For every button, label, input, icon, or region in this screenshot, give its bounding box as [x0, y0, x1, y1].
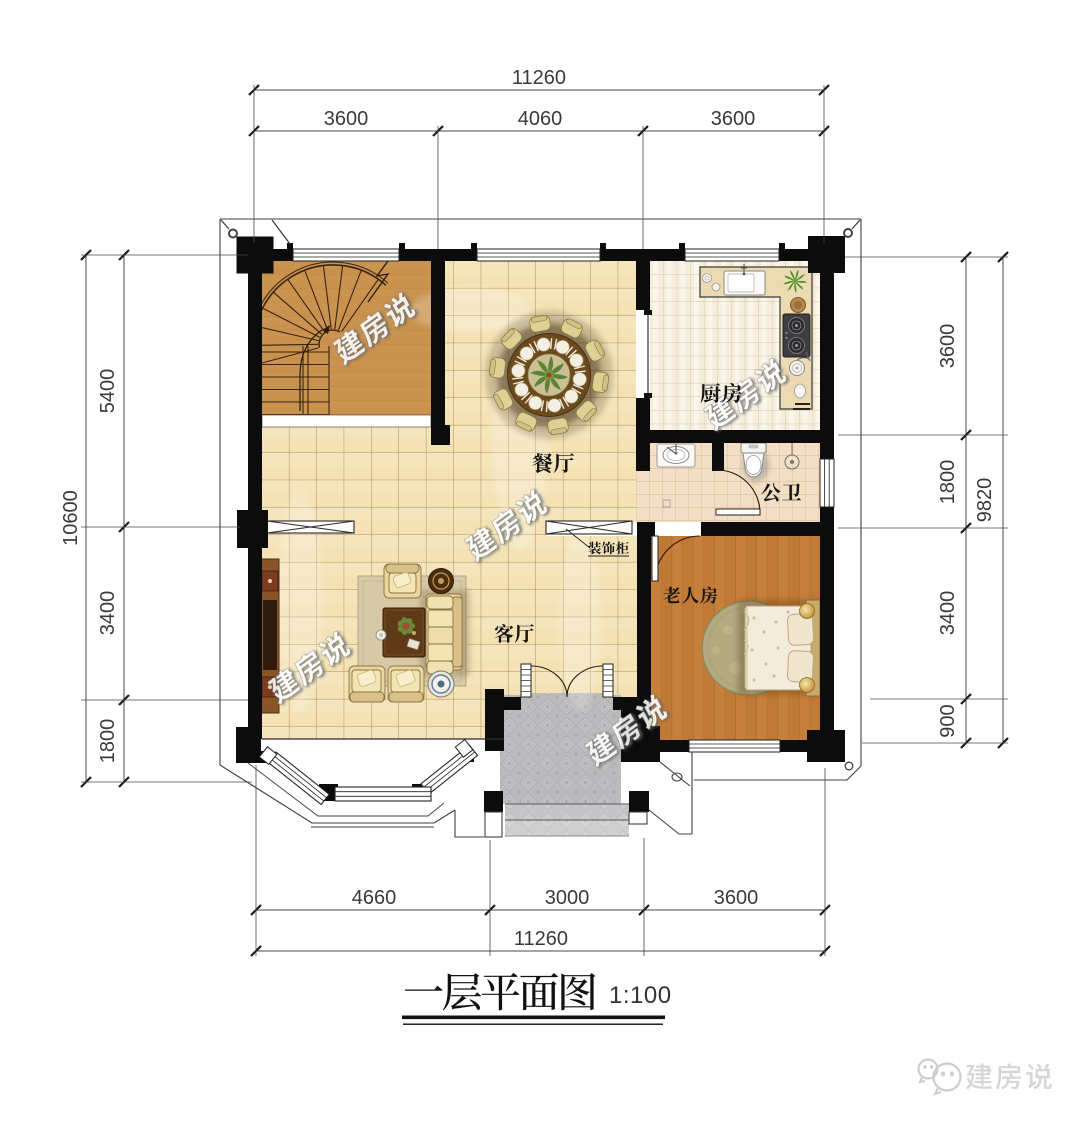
- svg-text:1800: 1800: [97, 719, 119, 764]
- svg-text:3600: 3600: [324, 108, 369, 130]
- svg-text:1800: 1800: [937, 460, 959, 505]
- svg-text:3400: 3400: [937, 591, 959, 636]
- svg-text:3000: 3000: [545, 887, 590, 909]
- svg-text:11260: 11260: [514, 928, 568, 950]
- svg-text:9820: 9820: [974, 478, 996, 523]
- svg-text:3600: 3600: [937, 324, 959, 369]
- svg-text:5400: 5400: [97, 369, 119, 414]
- svg-text:900: 900: [937, 704, 959, 737]
- svg-text:3600: 3600: [714, 887, 759, 909]
- svg-text:1:100: 1:100: [609, 982, 672, 1009]
- svg-text:3400: 3400: [97, 591, 119, 636]
- svg-text:4060: 4060: [518, 108, 563, 130]
- svg-text:3600: 3600: [711, 108, 756, 130]
- svg-text:11260: 11260: [512, 67, 566, 89]
- svg-text:10600: 10600: [60, 490, 82, 546]
- svg-text:4660: 4660: [352, 887, 397, 909]
